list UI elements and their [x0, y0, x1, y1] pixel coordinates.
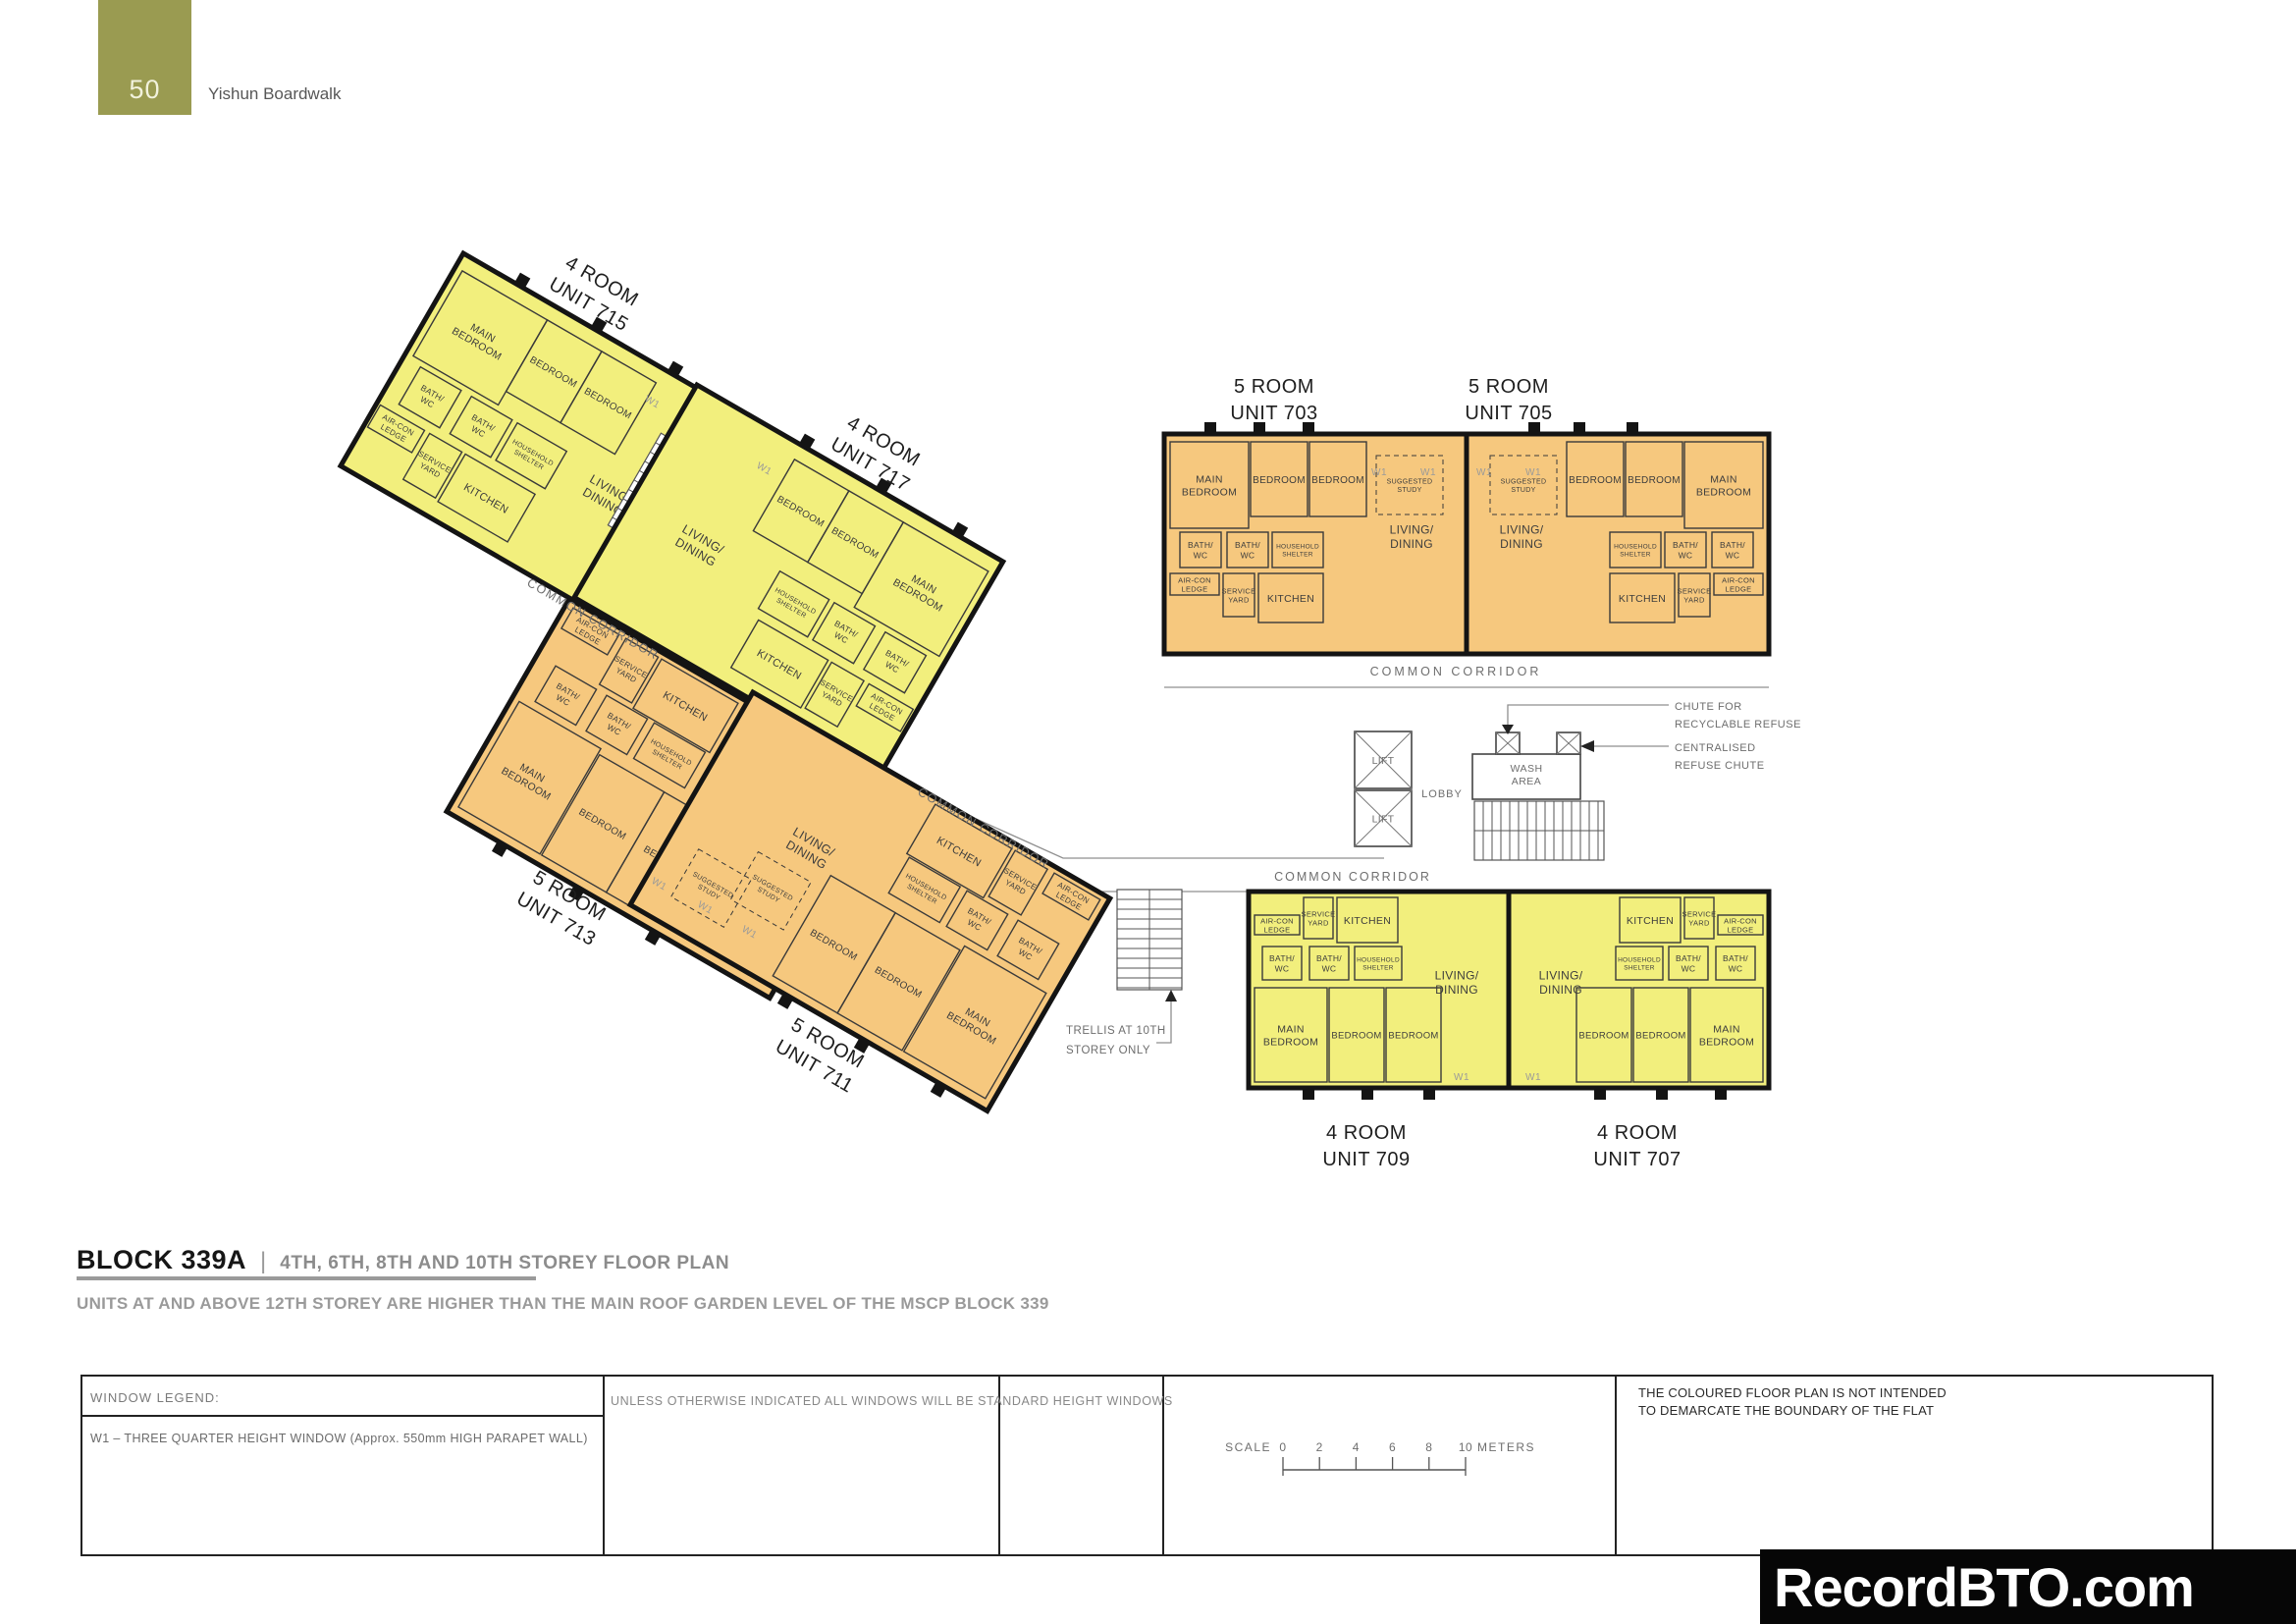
plan-text: HOUSEHOLDSHELTER [1614, 544, 1657, 559]
plan-text: COMMON CORRIDOR [1370, 665, 1542, 678]
plan-text: BEDROOM [1311, 475, 1364, 486]
plan-text: STOREY ONLY [1066, 1045, 1150, 1056]
plan-text: BEDROOM [1628, 475, 1681, 486]
plan-text: 4 [1353, 1440, 1360, 1454]
plan-text: W1 [1454, 1072, 1469, 1083]
plan-text: LIVING/DINING [1435, 968, 1479, 996]
plan-text: CHUTE FOR [1675, 701, 1742, 713]
plan-text: LIVING/DINING [1390, 522, 1434, 550]
plan-text: WASHAREA [1510, 763, 1542, 787]
plan-text: W1 [1525, 467, 1541, 478]
refuse-chute-box [1496, 732, 1520, 754]
plan-text: AIR-CONLEDGE [1260, 916, 1294, 934]
leader-arrowhead [1165, 990, 1177, 1001]
plan-text: KITCHEN [1267, 593, 1314, 605]
plan-text: METERS [1477, 1440, 1535, 1454]
floor-plan-page: 50 Yishun Boardwalk MAINBEDROOMBEDROOMBE… [0, 0, 2296, 1624]
unit-705-plan: MAINBEDROOMBEDROOMBEDROOMBATH/WCBATH/WCH… [1467, 422, 1769, 654]
plan-text: LIVING/DINING [1539, 968, 1583, 996]
plan-text: KITCHEN [1627, 915, 1674, 927]
plan-text: BEDROOM [1635, 1031, 1685, 1042]
plan-text: W1 [1420, 467, 1436, 478]
plan-text: LOBBY [1421, 788, 1463, 800]
floor-plan-drawing: MAINBEDROOMBEDROOMBEDROOMBATH/WCBATH/WCH… [0, 0, 2296, 1624]
plan-text: AIR-CONLEDGE [1724, 916, 1757, 934]
plan-text: 5 ROOMUNIT 703 [1230, 376, 1317, 424]
plan-text: KITCHEN [1344, 915, 1391, 927]
plan-text: 4 ROOMUNIT 707 [1593, 1122, 1681, 1170]
plan-text: COMMON CORRIDOR [1274, 870, 1431, 884]
plan-text: 8 [1425, 1440, 1432, 1454]
staircase [1474, 801, 1604, 860]
plan-text: BEDROOM [1253, 475, 1306, 486]
plan-text: W1 [1476, 467, 1492, 478]
plan-text: LIVING/DINING [1500, 522, 1544, 550]
plan-text: SCALE [1225, 1440, 1271, 1454]
plan-text: RECYCLABLE REFUSE [1675, 719, 1801, 731]
plan-text: REFUSE CHUTE [1675, 760, 1765, 772]
scale-bar: SCALEMETERS0246810 [1225, 1440, 1535, 1476]
plan-text: KITCHEN [1619, 593, 1666, 605]
unit-709-plan: AIR-CONLEDGESERVICEYARDKITCHENBATH/WCBAT… [1249, 892, 1509, 1100]
unit-707-plan: AIR-CONLEDGESERVICEYARDKITCHENBATH/WCBAT… [1509, 892, 1769, 1100]
plan-text: LIFT [1372, 814, 1395, 826]
plan-text: LIFT [1372, 755, 1395, 767]
plan-text: HOUSEHOLDSHELTER [1276, 544, 1319, 559]
plan-text: W1 [1371, 467, 1387, 478]
lift-shaft: LIFT [1355, 731, 1412, 788]
plan-text: BEDROOM [1569, 475, 1622, 486]
corridor-line [1508, 705, 1669, 727]
plan-text: 0 [1279, 1440, 1286, 1454]
plan-text: BEDROOM [1388, 1031, 1438, 1042]
plan-text: 6 [1389, 1440, 1396, 1454]
refuse-chute-box [1557, 732, 1580, 754]
plan-text: 5 ROOMUNIT 705 [1465, 376, 1552, 424]
watermark-banner: RecordBTO.com [1760, 1549, 2296, 1624]
leader-arrowhead [1580, 740, 1594, 752]
watermark-text: RecordBTO.com [1760, 1555, 2194, 1619]
staircase [1117, 890, 1182, 990]
unit-703-plan: MAINBEDROOMBEDROOMBEDROOMBATH/WCBATH/WCH… [1164, 422, 1467, 654]
plan-text: AIR-CONLEDGE [1722, 575, 1755, 593]
plan-text: BEDROOM [1578, 1031, 1629, 1042]
plan-text: CENTRALISED [1675, 742, 1756, 754]
plan-text: 2 [1316, 1440, 1323, 1454]
plan-text: AIR-CONLEDGE [1178, 575, 1211, 593]
plan-text: TRELLIS AT 10TH [1066, 1025, 1166, 1037]
plan-text: W1 [1525, 1072, 1541, 1083]
plan-text: HOUSEHOLDSHELTER [1618, 957, 1661, 972]
plan-text: 10 [1459, 1440, 1472, 1454]
plan-text: HOUSEHOLDSHELTER [1357, 957, 1400, 972]
lift-shaft: LIFT [1355, 790, 1412, 846]
plan-text: BEDROOM [1331, 1031, 1381, 1042]
plan-text: 4 ROOMUNIT 709 [1322, 1122, 1410, 1170]
